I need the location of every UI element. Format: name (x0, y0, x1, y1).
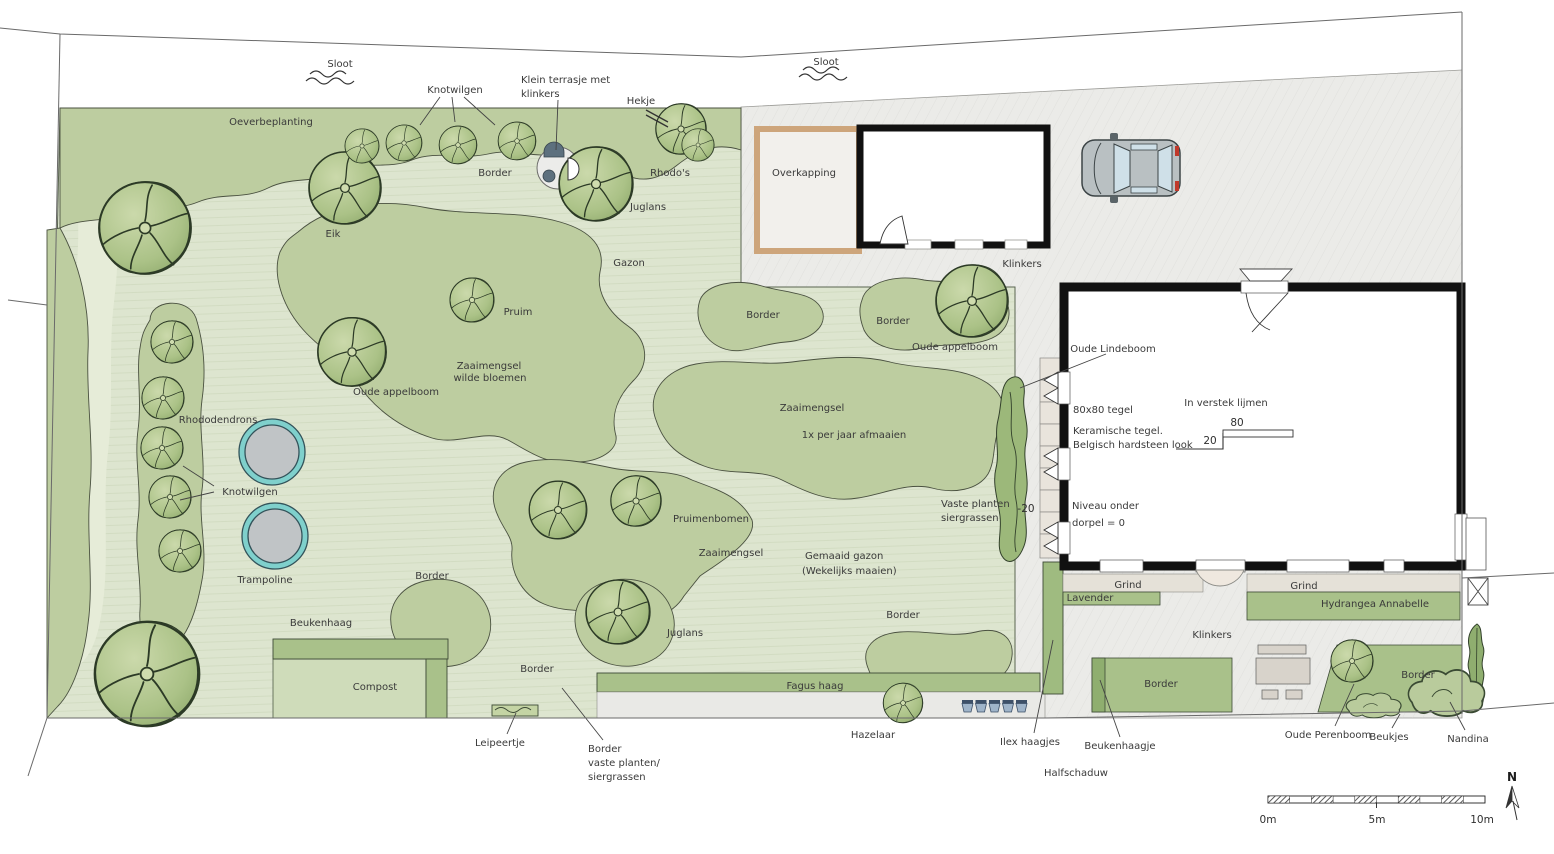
x-marker-box (1468, 578, 1488, 605)
tree-knotwilg-col-2 (142, 377, 184, 419)
label-border-mid-low: Border (520, 664, 554, 675)
grind-strip-right (1247, 574, 1460, 592)
bed-left-strip (47, 228, 91, 718)
garage (860, 128, 1047, 249)
beukenhaagje-strip (1092, 658, 1105, 712)
property-right-ext (1462, 573, 1554, 578)
pot-5 (1016, 700, 1027, 712)
tree-appelboom-left (318, 317, 386, 386)
pot-3 (989, 700, 1000, 712)
label-overkapping: Overkapping (772, 168, 836, 179)
tree-appelboom-right (936, 265, 1008, 337)
label-eik: Eik (326, 229, 341, 240)
tree-pruimenboom-2 (611, 476, 661, 527)
label-sloot-right: Sloot (813, 57, 838, 68)
house-window-bottom-1 (1100, 560, 1143, 572)
car-side-window-bottom (1131, 187, 1157, 193)
scale-label-end: 10m (1470, 814, 1494, 826)
scale-label-start: 0m (1260, 814, 1277, 826)
label-keramische-2: Belgisch hardsteen look (1073, 440, 1193, 451)
overkapping-structure (757, 129, 859, 251)
label-oude-appelboom-left: Oude appelboom (353, 387, 439, 398)
tree-knotwilg-4 (498, 122, 536, 160)
label-border-mid-left: Border (746, 310, 780, 321)
tree-pruimenboom-1 (529, 481, 587, 539)
label-klinkers-mid: Klinkers (1192, 630, 1231, 641)
label-zaaimengsel-wilde-2: wilde bloemen (453, 373, 526, 384)
scale-label-middle: 5m (1369, 814, 1386, 826)
label-border-right-low: Border (1401, 670, 1435, 681)
tree-knotwilg-col-3 (141, 427, 183, 469)
pot-1 (962, 700, 973, 712)
label-vaste-planten-1: Vaste planten (941, 499, 1010, 510)
terrace-table (1256, 658, 1310, 684)
north-label: N (1507, 770, 1517, 784)
label-rhododendrons: Rhododendrons (179, 415, 258, 426)
label-border-top: Border (478, 168, 512, 179)
terrace-chair-2 (1286, 690, 1302, 699)
label-zaaimengsel-mid: Zaaimengsel (780, 403, 845, 414)
north-arrow-icon: N (1506, 770, 1519, 820)
house-window-bottom-2 (1287, 560, 1349, 572)
label-keramische-1: Keramische tegel. (1073, 426, 1163, 437)
label-oude-lindeboom: Oude Lindeboom (1070, 344, 1155, 355)
house-right-annex (1466, 518, 1486, 570)
terrace-chair-1 (1262, 690, 1278, 699)
north-needle-dark (1506, 786, 1512, 808)
tree-juglans-lower (586, 580, 650, 644)
pot-2 (976, 700, 987, 712)
label-tegel-80: 80x80 tegel (1073, 405, 1133, 416)
label-hekje: Hekje (627, 96, 655, 107)
label-pruimenbomen: Pruimenbomen (673, 514, 749, 525)
label-border-mid-right: Border (876, 316, 910, 327)
label-dim-80: 80 (1230, 417, 1243, 429)
tree-rhodo-2 (682, 129, 714, 162)
label-nandina: Nandina (1447, 734, 1489, 745)
car-taillight-bottom (1175, 181, 1179, 191)
label-verstek: In verstek lijmen (1184, 398, 1267, 409)
tree-eik (309, 152, 381, 224)
label-halfschaduw: Halfschaduw (1044, 768, 1108, 779)
garden-plan-drawing: Sloot Sloot Knotwilgen Klein terrasje me… (0, 0, 1554, 854)
label-zaaimengsel-wilde-1: Zaaimengsel (457, 361, 522, 372)
pot-4 (1003, 700, 1014, 712)
label-dim-20: 20 (1203, 435, 1216, 447)
tree-knotwilg-col-1 (151, 321, 193, 363)
label-compost: Compost (353, 682, 398, 693)
property-left-tick (8, 300, 47, 305)
label-grind-right: Grind (1290, 581, 1317, 592)
label-knotwilgen-top: Knotwilgen (427, 85, 483, 96)
label-vaste-planten-2: siergrassen (941, 513, 999, 524)
tree-hazelaar (883, 683, 923, 723)
tree-knotwilg-col-5 (159, 530, 201, 572)
north-needle-light (1512, 786, 1519, 808)
label-knotwilgen-left: Knotwilgen (222, 487, 278, 498)
label-oude-appelboom-right: Oude appelboom (912, 342, 998, 353)
label-gazon: Gazon (613, 258, 645, 269)
house-window-right (1455, 514, 1467, 560)
scale-seg-7 (1398, 796, 1420, 803)
label-border-left-low: Border (415, 571, 449, 582)
car (1082, 133, 1180, 203)
label-beukenhaagje: Beukenhaagje (1084, 741, 1155, 752)
car-mirror-top (1110, 133, 1118, 140)
label-gemaaid-1: Gemaaid gazon (805, 551, 883, 562)
tree-knotwilg-2 (386, 125, 422, 161)
terrace-chair (543, 170, 555, 182)
label-juglans-low: Juglans (666, 628, 703, 639)
scale-seg-9 (1442, 796, 1464, 803)
label-leipeertje: Leipeertje (475, 738, 525, 749)
label-rhodos: Rhodo's (650, 168, 690, 179)
car-taillight-top (1175, 146, 1179, 156)
label-klein-terrasje-1: Klein terrasje met (521, 75, 610, 86)
house-window-bottom-3 (1384, 560, 1404, 572)
label-afmaaien: 1x per jaar afmaaien (802, 430, 907, 441)
label-trampoline: Trampoline (236, 575, 292, 586)
label-klein-terrasje-2: klinkers (521, 89, 560, 100)
terrace-bench-rect (1258, 645, 1306, 654)
scale-seg-1 (1268, 796, 1290, 803)
label-klinkers-top: Klinkers (1002, 259, 1041, 270)
house-door-top-gap (1241, 281, 1288, 293)
label-border-gazon: Border (886, 610, 920, 621)
tree-perenboom (1331, 640, 1373, 682)
scale-seg-5 (1355, 796, 1377, 803)
label-gemaaid-2: (Wekelijks maaien) (802, 566, 897, 577)
tree-knotwilg-col-4 (149, 476, 191, 518)
tree-big-left-top (99, 182, 191, 274)
beukenhaag-vertical (426, 659, 447, 718)
label-pruim: Pruim (504, 307, 533, 318)
label-niveau-1: Niveau onder (1072, 501, 1140, 512)
scale-bar: 0m 5m 10m (1260, 796, 1494, 826)
label-border-block: Border (1144, 679, 1178, 690)
property-bottomleft-ext (28, 718, 47, 776)
label-oude-perenboom: Oude Perenboom (1285, 730, 1371, 741)
tree-knotwilg-1 (345, 129, 379, 163)
label-fagus-haag: Fagus haag (787, 681, 844, 692)
label-beukjes: Beukjes (1369, 732, 1408, 743)
label-zaaimengsel-low: Zaaimengsel (699, 548, 764, 559)
garden-plan-page: Sloot Sloot Knotwilgen Klein terrasje me… (0, 0, 1554, 854)
label-oeverbeplanting: Oeverbeplanting (229, 117, 313, 128)
label-juglans-top: Juglans (629, 202, 666, 213)
tree-knotwilg-3 (439, 126, 477, 164)
garage-window-3 (1005, 240, 1027, 249)
trampoline-top (239, 419, 305, 485)
label-beukenhaag: Beukenhaag (290, 618, 352, 629)
car-rear-window (1158, 145, 1172, 192)
label-ilex-haagjes: Ilex haagjes (1000, 737, 1060, 748)
label-border-vp-1: Border (588, 744, 622, 755)
garage-window-2 (955, 240, 983, 249)
label-dim-min20: -20 (1017, 503, 1034, 515)
car-mirror-bottom (1110, 196, 1118, 203)
sloot-symbol-right (799, 67, 847, 80)
car-side-window-top (1131, 144, 1157, 150)
compost-area (273, 659, 426, 718)
tree-big-left-bottom (95, 621, 199, 726)
label-niveau-2: dorpel = 0 (1072, 518, 1125, 529)
label-border-vp-3: siergrassen (588, 772, 646, 783)
label-lavender: Lavender (1067, 593, 1115, 604)
sloot-symbol-left (306, 71, 354, 84)
label-border-vp-2: vaste planten/ (588, 758, 661, 769)
garage-window-1 (905, 240, 931, 249)
label-hydrangea: Hydrangea Annabelle (1321, 599, 1429, 610)
scale-seg-3 (1311, 796, 1333, 803)
label-hazelaar: Hazelaar (851, 730, 896, 741)
label-grind-left: Grind (1114, 580, 1141, 591)
tree-pruim (450, 278, 494, 322)
property-top-left (0, 12, 1462, 57)
beukenhaag-horizontal (273, 639, 448, 659)
trampoline-bottom (242, 503, 308, 569)
label-sloot-left: Sloot (327, 59, 352, 70)
blue-pots (962, 700, 1027, 712)
car-windshield (1114, 144, 1130, 193)
